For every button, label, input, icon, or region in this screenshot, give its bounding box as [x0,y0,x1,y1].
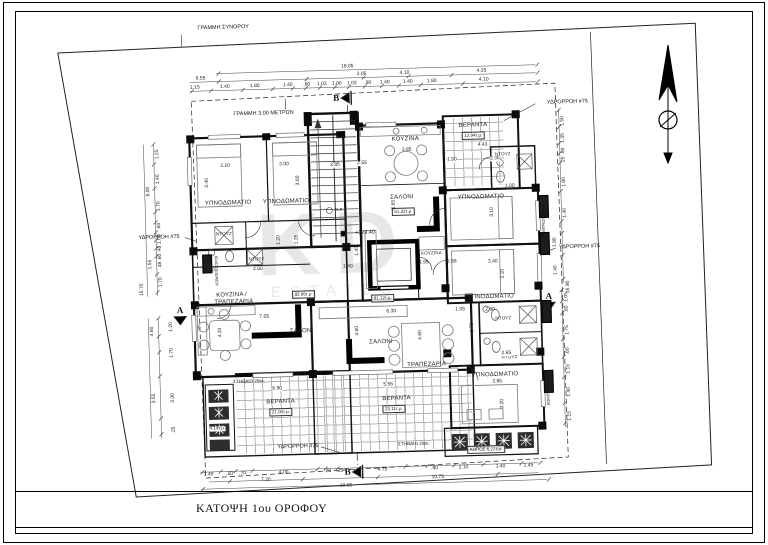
drawing-title: ΚΑΤΟΨΗ 1ου ΟΡΟΦΟΥ [196,501,327,516]
drawing-sheet: ΓΡΑΜΜΗ ΣΥΝΟΡΟΥ ΓΡΑΜΜΗ 3.00 ΜΕΤΡΩΝ ΥΔΡΟΡΡ… [0,0,768,545]
title-strip-line-top [16,491,752,492]
north-arrow-icon [640,35,700,175]
title-strip-line-bottom [16,527,752,528]
